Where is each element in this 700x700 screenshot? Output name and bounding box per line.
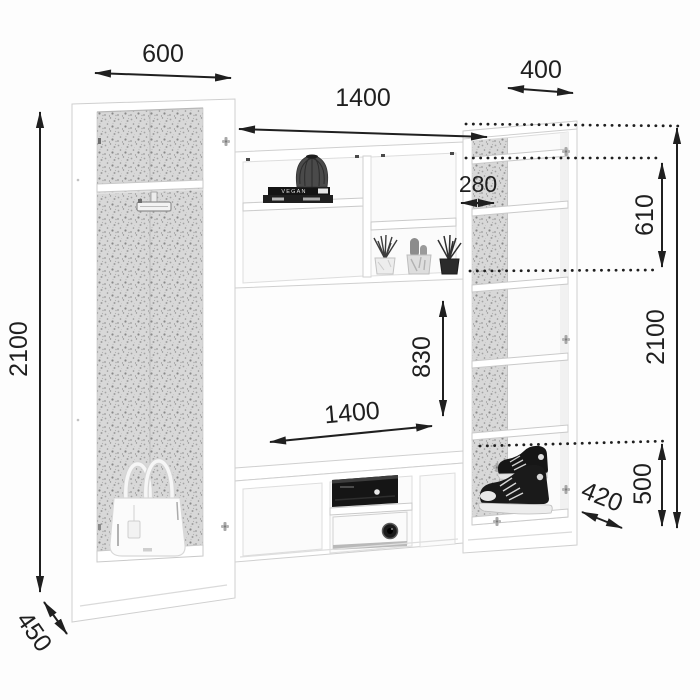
book-spine-text: VEGAN xyxy=(281,189,306,195)
dim-label-right-width: 400 xyxy=(520,56,562,84)
dim-label-left-width: 600 xyxy=(142,40,184,68)
dim-label-right-depth: 420 xyxy=(577,476,626,518)
tv-stand-right-compartment xyxy=(420,473,455,547)
furniture-dimension-diagram: VEGAN xyxy=(0,0,700,700)
hinge xyxy=(98,524,101,530)
dim-label-niche-width-top: 1400 xyxy=(335,84,391,112)
dim-label-top-shelf-depth: 280 xyxy=(459,171,497,197)
dim-right-depth: 420 xyxy=(577,476,626,528)
dim-right-bottom-section: 500 xyxy=(629,444,662,526)
dim-label-niche-width-bottom: 1400 xyxy=(323,397,381,430)
left-wardrobe xyxy=(72,99,235,622)
dim-right-top-section: 610 xyxy=(631,163,662,267)
black-media-player xyxy=(332,475,398,507)
dim-label-right-bottom-section: 500 xyxy=(629,463,657,505)
dim-label-left-depth: 450 xyxy=(11,607,58,657)
dim-left-total-height: 2100 xyxy=(5,112,40,592)
books: VEGAN xyxy=(263,187,333,203)
tv-stand-left-compartment xyxy=(243,483,322,556)
diagram-canvas: VEGAN xyxy=(0,0,700,700)
top-cabinet: VEGAN xyxy=(235,142,463,288)
dim-niche-width-bottom: 1400 xyxy=(270,397,432,442)
dim-label-right-total-height: 2100 xyxy=(642,309,670,365)
hinge xyxy=(98,138,101,144)
dim-left-width: 600 xyxy=(95,40,231,78)
dim-left-depth: 450 xyxy=(11,602,67,657)
dim-label-niche-height: 830 xyxy=(408,336,436,378)
dim-niche-width-top: 1400 xyxy=(239,84,487,137)
bag-tag xyxy=(128,521,140,538)
tv-stand xyxy=(235,451,463,562)
dim-label-left-total-height: 2100 xyxy=(5,321,33,377)
dim-label-right-top-section: 610 xyxy=(631,194,659,236)
dim-right-width: 400 xyxy=(508,56,573,93)
dim-niche-height: 830 xyxy=(408,301,443,416)
